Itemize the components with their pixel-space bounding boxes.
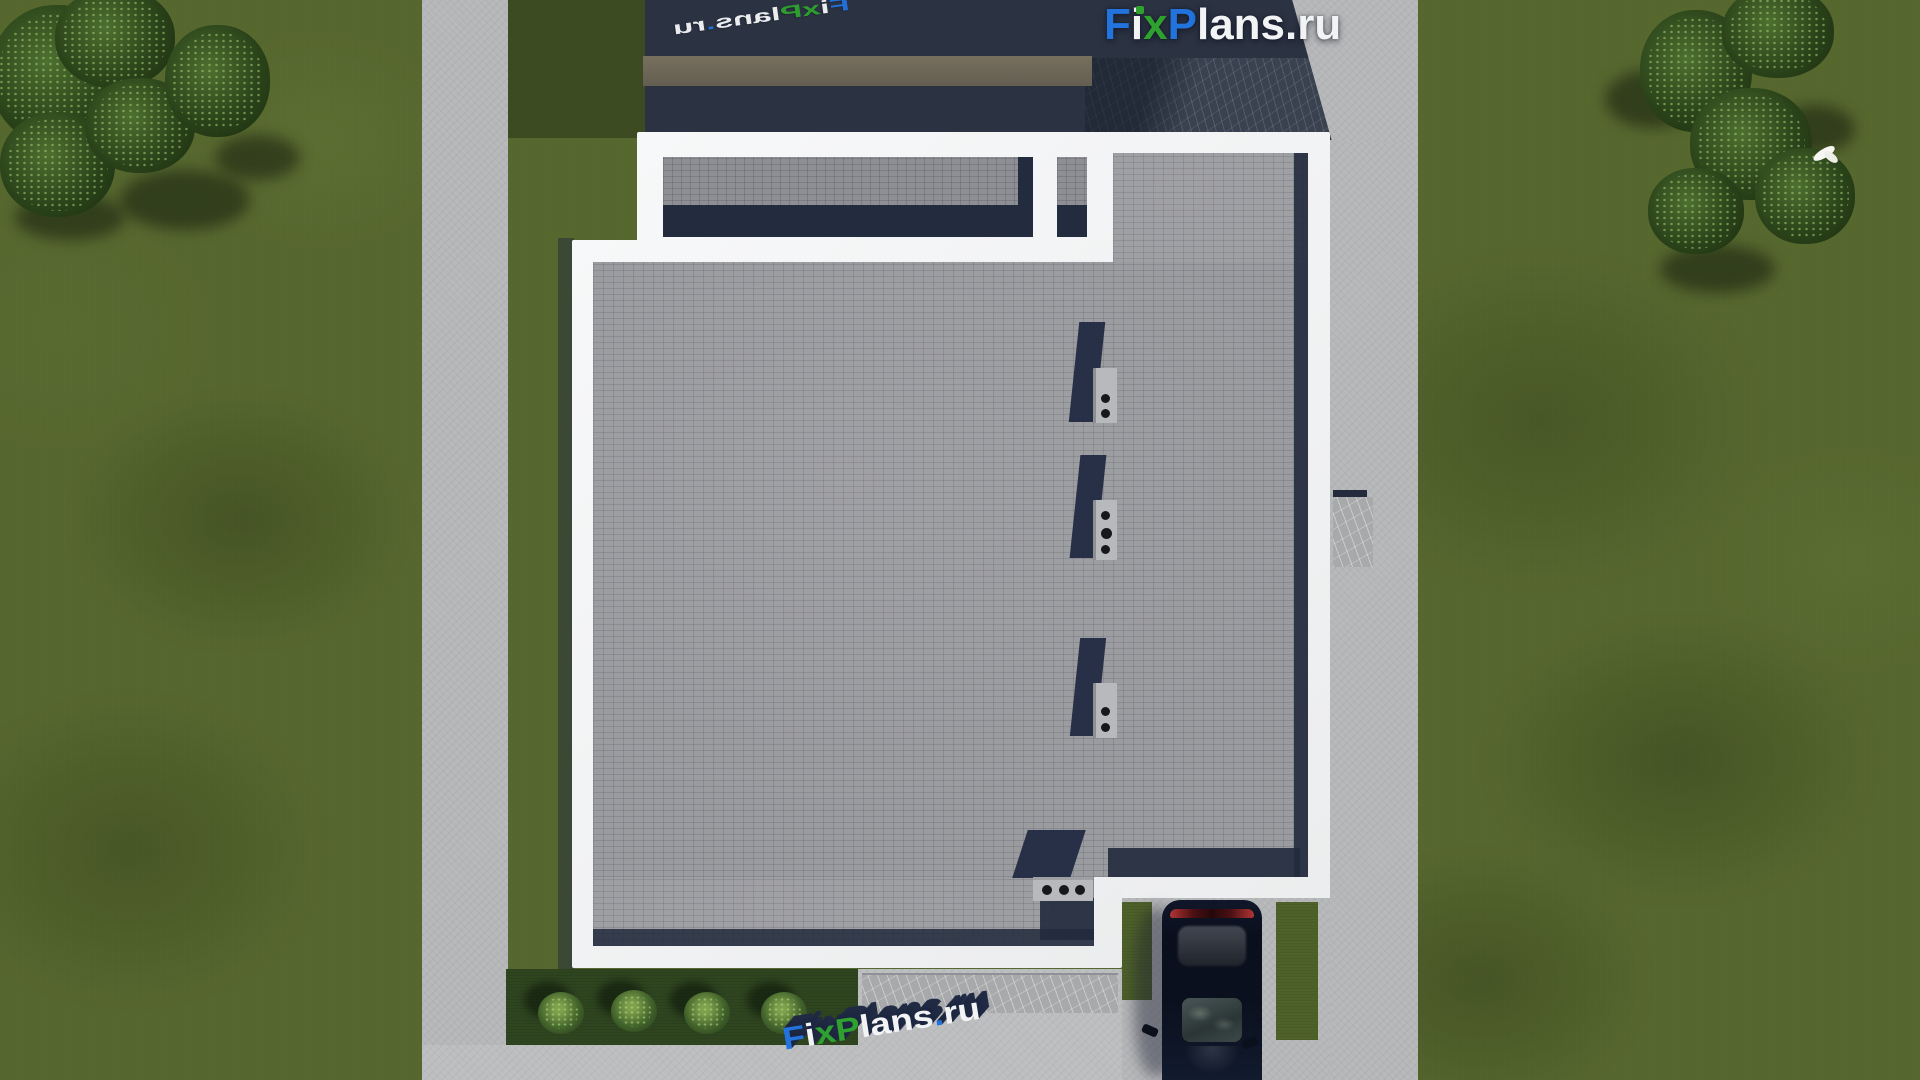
terrace-shadow-bottom: [663, 205, 1033, 237]
chimney-vent-hole: [1101, 545, 1110, 554]
vent-pipe: [1075, 885, 1085, 895]
watermark-letter: F: [828, 0, 851, 16]
watermark-letter: P: [779, 0, 804, 23]
tree-shadow: [120, 170, 250, 230]
car-windshield: [1182, 998, 1242, 1042]
lawn-shadow-top: [508, 0, 650, 138]
chimney-3: [1093, 683, 1117, 738]
bush: [538, 992, 584, 1034]
logo-letter: x: [1143, 0, 1167, 49]
logo-letter: F: [1104, 0, 1131, 49]
driveway-lawn-right: [1276, 902, 1318, 1040]
tree-canopy: [55, 0, 175, 88]
tree-shadow: [1660, 245, 1775, 293]
roof-main: [593, 262, 1308, 877]
roof-shadow-right: [1294, 153, 1308, 877]
boundary-wall-top: [643, 56, 1092, 86]
logo-letter: lans: [1197, 0, 1285, 49]
roof-right-upper: [1113, 153, 1308, 265]
path-left: [422, 0, 508, 1080]
tree-shadow: [215, 135, 300, 180]
roof-shadow-bottom-left: [593, 929, 1094, 946]
car: [1150, 900, 1272, 1080]
chimney-vent-hole: [1101, 528, 1112, 539]
chimney-1: [1093, 368, 1117, 423]
roof-shadow-notch-corner: [1040, 898, 1094, 940]
chimney-vent-hole: [1101, 723, 1110, 732]
car-taillights: [1170, 909, 1254, 918]
watermark-letter: ru: [672, 14, 708, 39]
roof-shadow-bottom-right: [1108, 848, 1300, 877]
aerial-render: FixPlans.ru FixPlans.ru FixPlans.ru: [0, 0, 1920, 1080]
chimney-2: [1093, 500, 1117, 560]
terrace-cell-shadow: [1057, 205, 1087, 237]
car-body: [1162, 900, 1262, 1080]
vent-pipe: [1059, 885, 1069, 895]
roof-vent: [1033, 877, 1093, 901]
terrace-shadow-right: [1018, 157, 1033, 237]
chimney-vent-hole: [1101, 394, 1110, 403]
chimney-vent-hole: [1101, 511, 1110, 520]
vent-pipe: [1042, 885, 1052, 895]
car-hood: [1184, 1046, 1240, 1074]
car-rear-window: [1178, 926, 1246, 966]
watermark-letter: ru: [940, 991, 982, 1031]
logo-i-dot: [1136, 6, 1144, 14]
logo-letter: ru: [1297, 0, 1341, 49]
bird: [1812, 140, 1848, 170]
chimney-vent-hole: [1101, 707, 1110, 716]
stone-pad-right: [1333, 497, 1373, 567]
tree-canopy: [165, 25, 270, 137]
logo-letter: P: [1168, 0, 1197, 49]
bush: [684, 992, 730, 1034]
dark-stone-paving: [1085, 58, 1333, 138]
tree-canopy: [1648, 168, 1744, 254]
bush: [611, 990, 657, 1032]
chimney-vent-hole: [1101, 409, 1110, 418]
watermark-letter: x: [801, 0, 822, 20]
logo-letter: .: [1285, 0, 1297, 49]
